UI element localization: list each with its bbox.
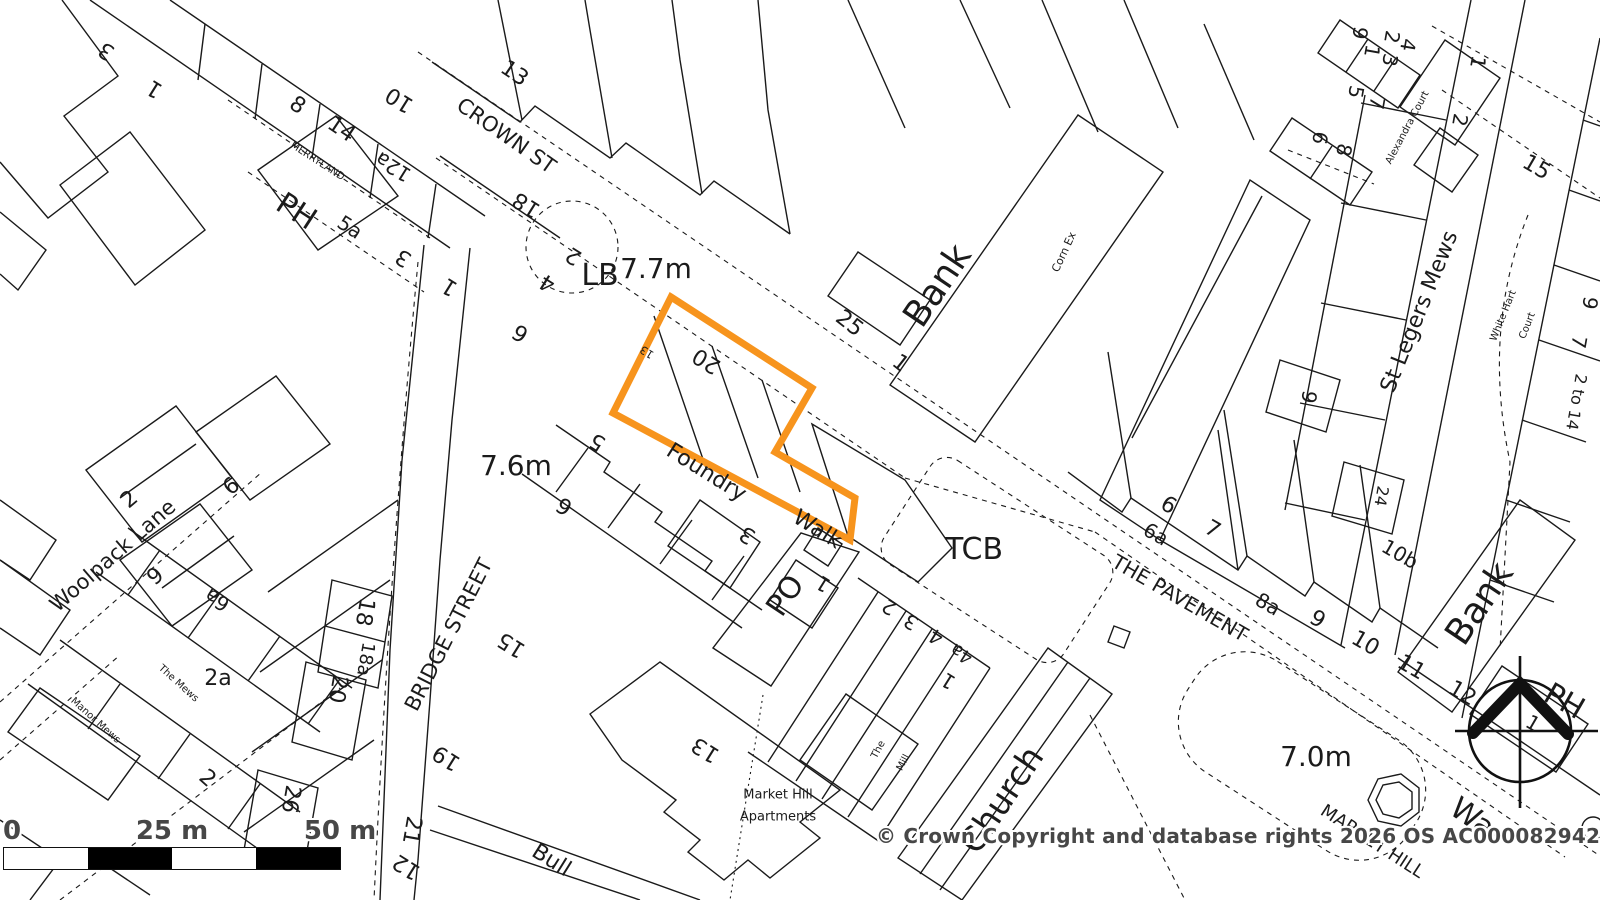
map-viewport[interactable]: 31814MERRYLANDPH5a12a1013CROWN ST1831246… (0, 0, 1600, 900)
scale-label-zero: 0 (3, 818, 21, 844)
scale-label-end: 50 m (304, 818, 376, 844)
building-outlines (0, 0, 1600, 900)
map-canvas (0, 0, 1600, 900)
scale-segment (88, 848, 172, 869)
scale-segment (172, 848, 256, 869)
scale-segment (256, 848, 340, 869)
scale-label-mid: 25 m (136, 818, 208, 844)
copyright-notice: © Crown Copyright and database rights 20… (876, 826, 1600, 846)
scale-bar (3, 847, 341, 870)
scale-segment (4, 848, 88, 869)
